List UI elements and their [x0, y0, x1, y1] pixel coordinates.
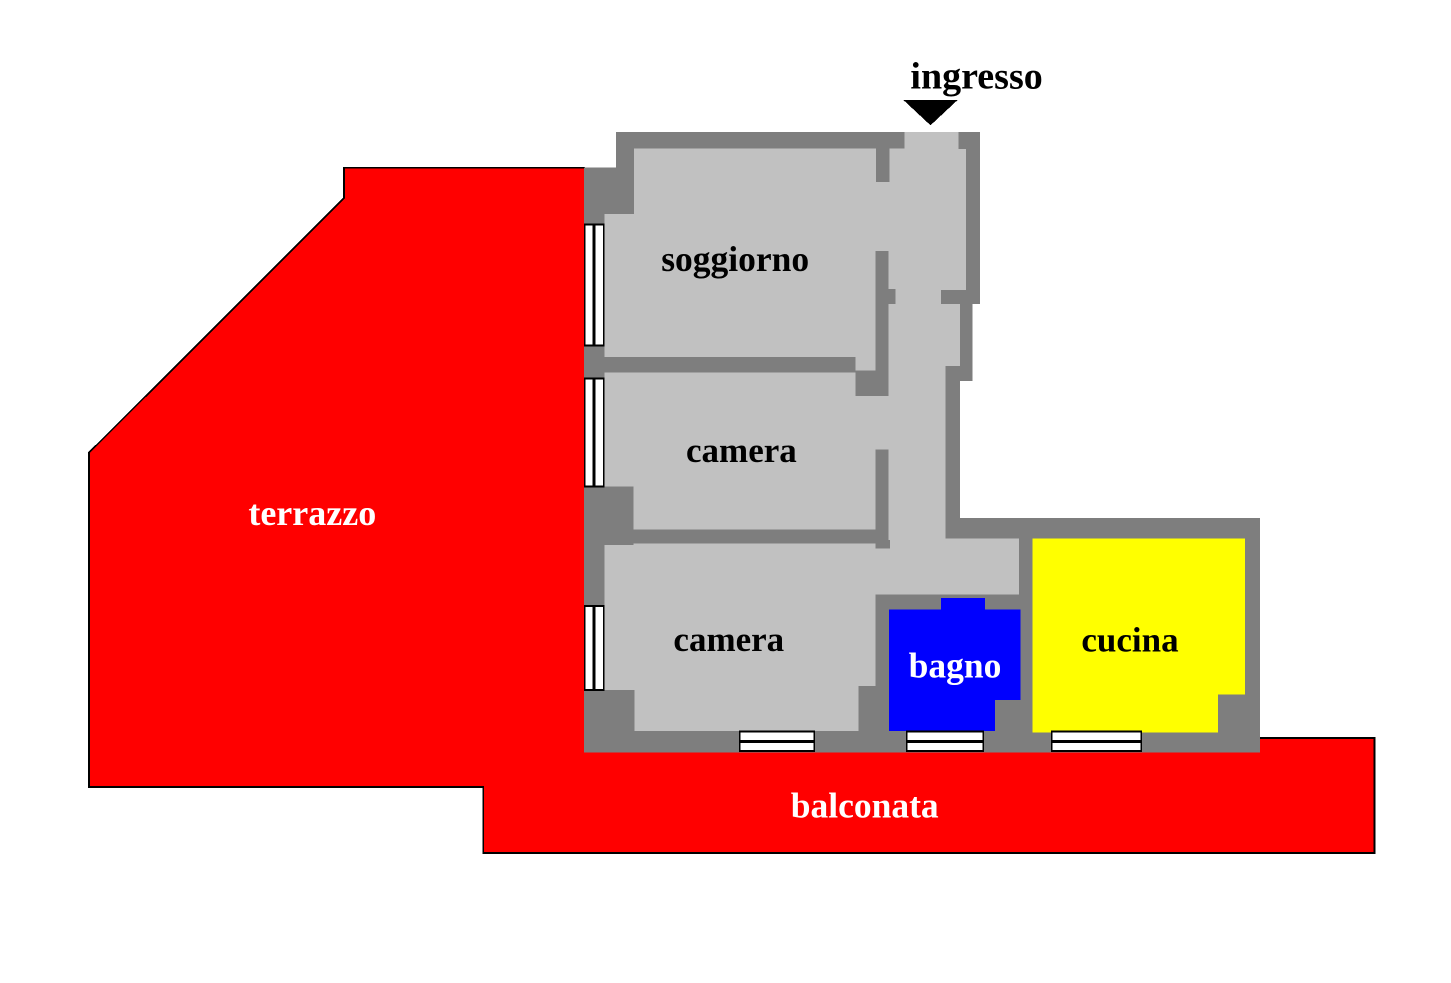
- svg-text:terrazzo: terrazzo: [248, 493, 376, 533]
- svg-text:camera: camera: [686, 431, 797, 470]
- svg-text:balconata: balconata: [791, 786, 939, 826]
- svg-text:camera: camera: [673, 620, 784, 659]
- svg-text:bagno: bagno: [909, 645, 1002, 685]
- svg-text:cucina: cucina: [1081, 621, 1178, 660]
- svg-text:soggiorno: soggiorno: [661, 239, 809, 279]
- svg-text:ingresso: ingresso: [910, 56, 1042, 98]
